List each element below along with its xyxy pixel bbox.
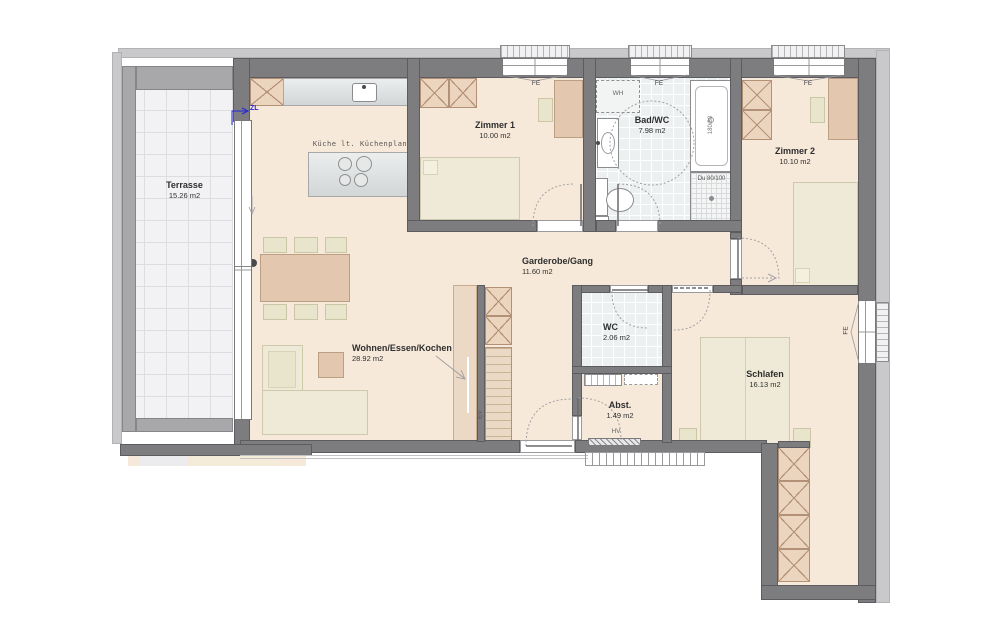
desk [828, 78, 858, 140]
terrace-parapet-bottom [136, 418, 233, 432]
room-area: 16.13 m2 [725, 380, 805, 389]
wardrobe [778, 549, 810, 582]
door-opening [730, 239, 742, 279]
terrace-parapet-top [136, 66, 233, 90]
bathtub-size-label: 180/80 [708, 107, 714, 143]
room-name: WC [603, 322, 618, 332]
supply-air-label: ZL [250, 105, 259, 112]
wall-segment [730, 58, 742, 232]
terrace-glass-door [234, 120, 252, 420]
shutter-box [628, 45, 692, 58]
faucet-icon [596, 141, 600, 145]
kitchen-note: Küche lt. Küchenplan [308, 140, 412, 148]
wall-segment [662, 285, 672, 443]
wardrobe [778, 447, 810, 481]
chair [263, 304, 287, 320]
room-name: Zimmer 1 [475, 120, 515, 130]
room-name: Zimmer 2 [775, 146, 815, 156]
pillow [795, 268, 810, 283]
chair [325, 304, 347, 320]
room-label-zimmer2: Zimmer 2 10.10 m2 [755, 146, 835, 166]
toilet [606, 188, 634, 212]
entrance-door-opening [520, 440, 575, 453]
wall-segment [572, 285, 582, 416]
door-opening [572, 416, 582, 440]
chair [294, 237, 318, 253]
hall-wardrobe [485, 287, 512, 316]
window [502, 58, 568, 76]
room-area: 15.26 m2 [136, 191, 233, 200]
wardrobe [778, 481, 810, 515]
wall-segment [233, 58, 250, 122]
room-area: 2.06 m2 [603, 333, 653, 342]
chair [325, 237, 347, 253]
chair [263, 237, 287, 253]
kitchen-counter [283, 78, 409, 106]
washer-label: WH [596, 90, 640, 97]
glass-door-divider [235, 266, 251, 267]
window [630, 58, 690, 76]
room-area: 28.92 m2 [352, 354, 482, 363]
shutter-box [500, 45, 570, 58]
door-opening [616, 220, 658, 232]
faucet-icon [362, 85, 366, 89]
shutter-box [876, 302, 889, 362]
room-name: Garderobe/Gang [522, 256, 593, 266]
desk [554, 80, 583, 138]
dining-table [260, 254, 350, 302]
built-in-label: EV [477, 405, 484, 425]
room-name: Schlafen [746, 369, 784, 379]
room-area: 10.00 m2 [455, 131, 535, 140]
double-bed [700, 337, 790, 448]
kitchen-tall-cabinet [250, 78, 284, 106]
wall-segment [761, 443, 778, 590]
bedroom-dressing-opening [808, 441, 860, 449]
door-opening [610, 285, 648, 293]
room-name: Abst. [609, 400, 632, 410]
shutter-box [771, 45, 845, 58]
window [773, 58, 845, 76]
wardrobe [420, 78, 449, 108]
lower-unit-furniture [140, 456, 188, 466]
window-label: FE [651, 80, 667, 87]
chair [810, 97, 825, 123]
washbasin [601, 132, 615, 154]
entrance-threshold-hatch [588, 438, 641, 446]
wall-segment [572, 366, 672, 374]
room-label-zimmer1: Zimmer 1 10.00 m2 [455, 120, 535, 140]
niche-cabinet [584, 374, 622, 386]
wall-segment [596, 220, 616, 232]
sofa [262, 390, 368, 435]
door-opening [672, 285, 713, 293]
terrace-parapet-left [122, 66, 136, 432]
cooktop-burner [338, 157, 352, 171]
wall-segment [742, 285, 858, 295]
wardrobe [778, 515, 810, 549]
cooktop-burner [356, 156, 372, 172]
drain-icon [709, 196, 714, 201]
wardrobe [449, 78, 477, 108]
room-label-wohnen: Wohnen/Essen/Kochen 28.92 m2 [352, 343, 482, 363]
room-area: 7.98 m2 [612, 126, 692, 135]
room-label-terrasse: Terrasse 15.26 m2 [136, 180, 233, 200]
coffee-table [318, 352, 344, 378]
room-label-abst: Abst. 1.49 m2 [590, 400, 650, 420]
wall-segment [407, 220, 537, 232]
wall-segment [730, 232, 742, 239]
walkway-edge [240, 455, 588, 459]
terrace-floor [122, 66, 233, 432]
chair [538, 98, 553, 122]
floor-plan: Terrasse 15.26 m2 Zimmer 1 10.00 m2 Bad/… [0, 0, 1000, 641]
room-name: Wohnen/Essen/Kochen [352, 343, 452, 353]
room-area: 11.60 m2 [522, 267, 642, 276]
wall-segment [656, 220, 742, 232]
window-label: FE [528, 80, 544, 87]
room-label-wc: WC 2.06 m2 [603, 322, 653, 342]
door-opening [537, 220, 583, 232]
window-label: FE [843, 323, 850, 339]
sliding-panel [453, 285, 477, 442]
room-label-badwc: Bad/WC 7.98 m2 [612, 115, 692, 135]
wall-segment [761, 585, 876, 600]
sofa-cushion [268, 351, 296, 388]
room-area: 10.10 m2 [755, 157, 835, 166]
wall-segment [583, 58, 596, 232]
railing [585, 452, 705, 466]
exterior-trim-left [112, 52, 122, 444]
wall-segment [778, 441, 810, 448]
shower-size-label: Du 80/100 [691, 176, 732, 182]
room-label-garderobe: Garderobe/Gang 11.60 m2 [522, 256, 642, 276]
window [858, 300, 876, 364]
chair [294, 304, 318, 320]
bed-centerline [745, 338, 746, 447]
wardrobe [742, 110, 772, 140]
room-name: Bad/WC [635, 115, 670, 125]
pillow [423, 160, 438, 175]
room-label-schlafen: Schlafen 16.13 m2 [725, 369, 805, 389]
panel-handle [467, 357, 469, 413]
hall-wardrobe [485, 316, 512, 345]
distributor-label: HV [604, 428, 628, 435]
cooktop-burner [354, 173, 368, 187]
wardrobe [742, 80, 772, 110]
cooktop-burner [339, 174, 351, 186]
room-area: 1.49 m2 [590, 411, 650, 420]
wall-segment [713, 285, 742, 293]
niche-cabinet [624, 374, 658, 385]
room-name: Terrasse [166, 180, 203, 190]
hall-shelf [485, 347, 512, 442]
window-label: FE [800, 80, 816, 87]
